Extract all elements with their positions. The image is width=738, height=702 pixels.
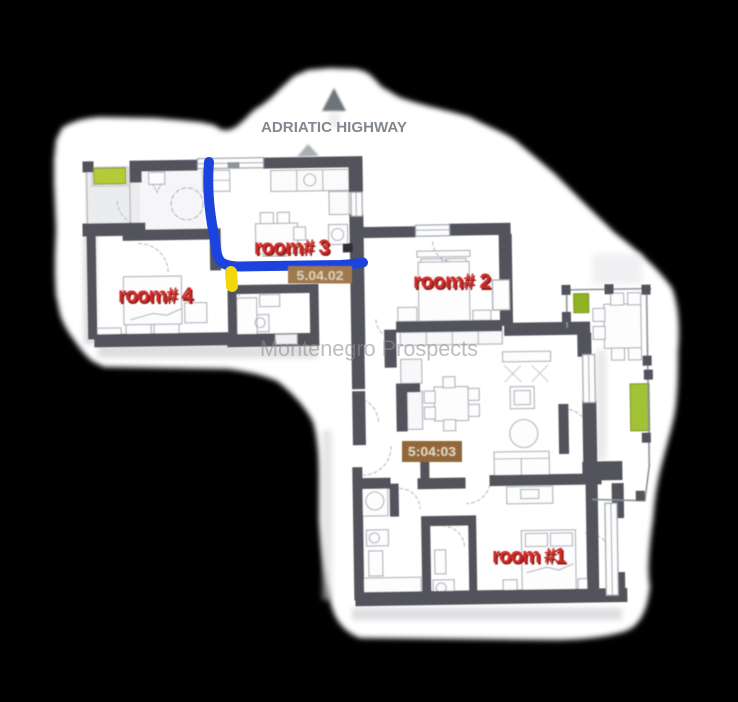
svg-text:room# 2: room# 2 (413, 270, 491, 293)
svg-text:5.04.02: 5.04.02 (297, 269, 344, 283)
svg-text:room# 3: room# 3 (254, 236, 330, 259)
svg-text:room# 4: room# 4 (118, 284, 193, 307)
svg-text:room #1: room #1 (492, 545, 566, 568)
svg-text:ADRIATIC HIGHWAY: ADRIATIC HIGHWAY (261, 119, 407, 136)
svg-text:5:04:03: 5:04:03 (408, 445, 456, 459)
svg-text:Montenegro Prospects: Montenegro Prospects (260, 336, 478, 361)
